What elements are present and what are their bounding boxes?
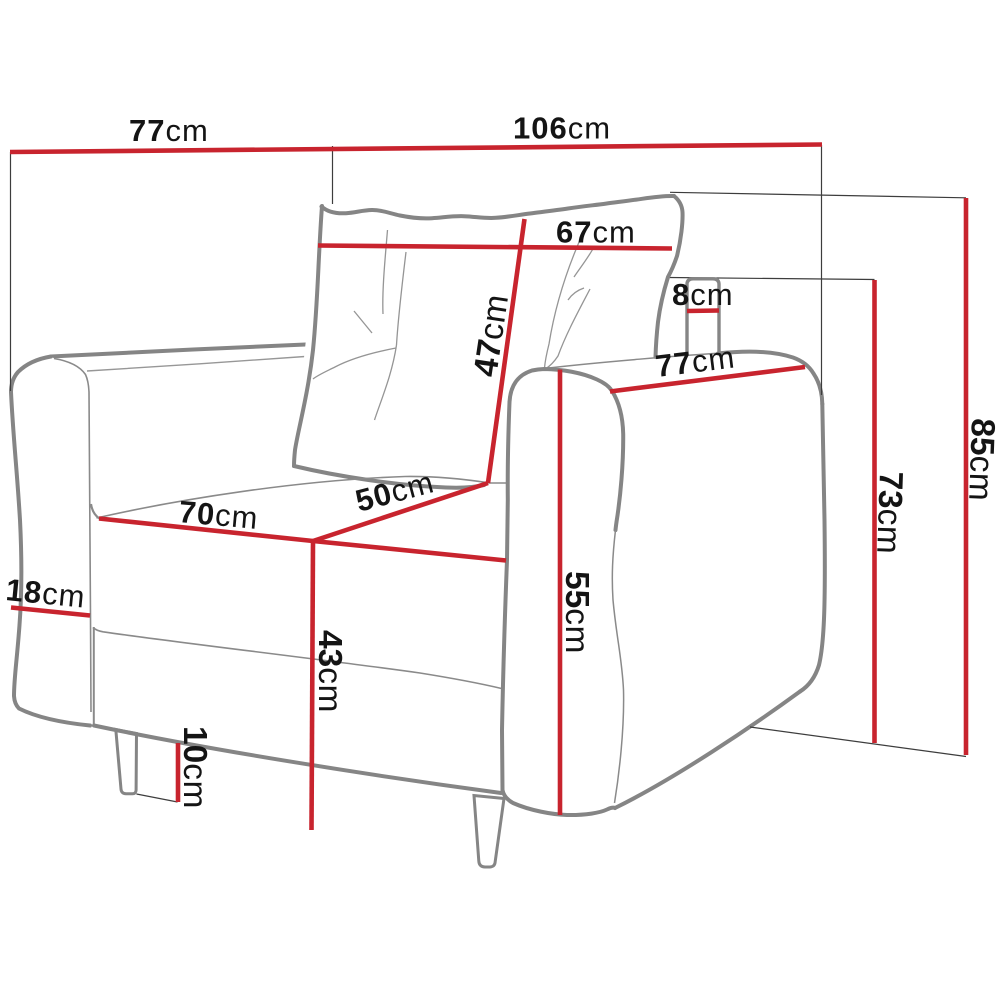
svg-text:55cm: 55cm (558, 571, 595, 654)
svg-text:106cm: 106cm (513, 111, 611, 146)
svg-text:10cm: 10cm (176, 726, 213, 809)
svg-text:8cm: 8cm (672, 277, 734, 312)
svg-text:73cm: 73cm (869, 471, 909, 555)
svg-text:85cm: 85cm (961, 418, 1000, 502)
svg-text:77cm: 77cm (129, 113, 209, 148)
svg-text:70cm: 70cm (177, 494, 260, 536)
svg-text:67cm: 67cm (556, 215, 636, 250)
svg-text:43cm: 43cm (311, 630, 348, 713)
